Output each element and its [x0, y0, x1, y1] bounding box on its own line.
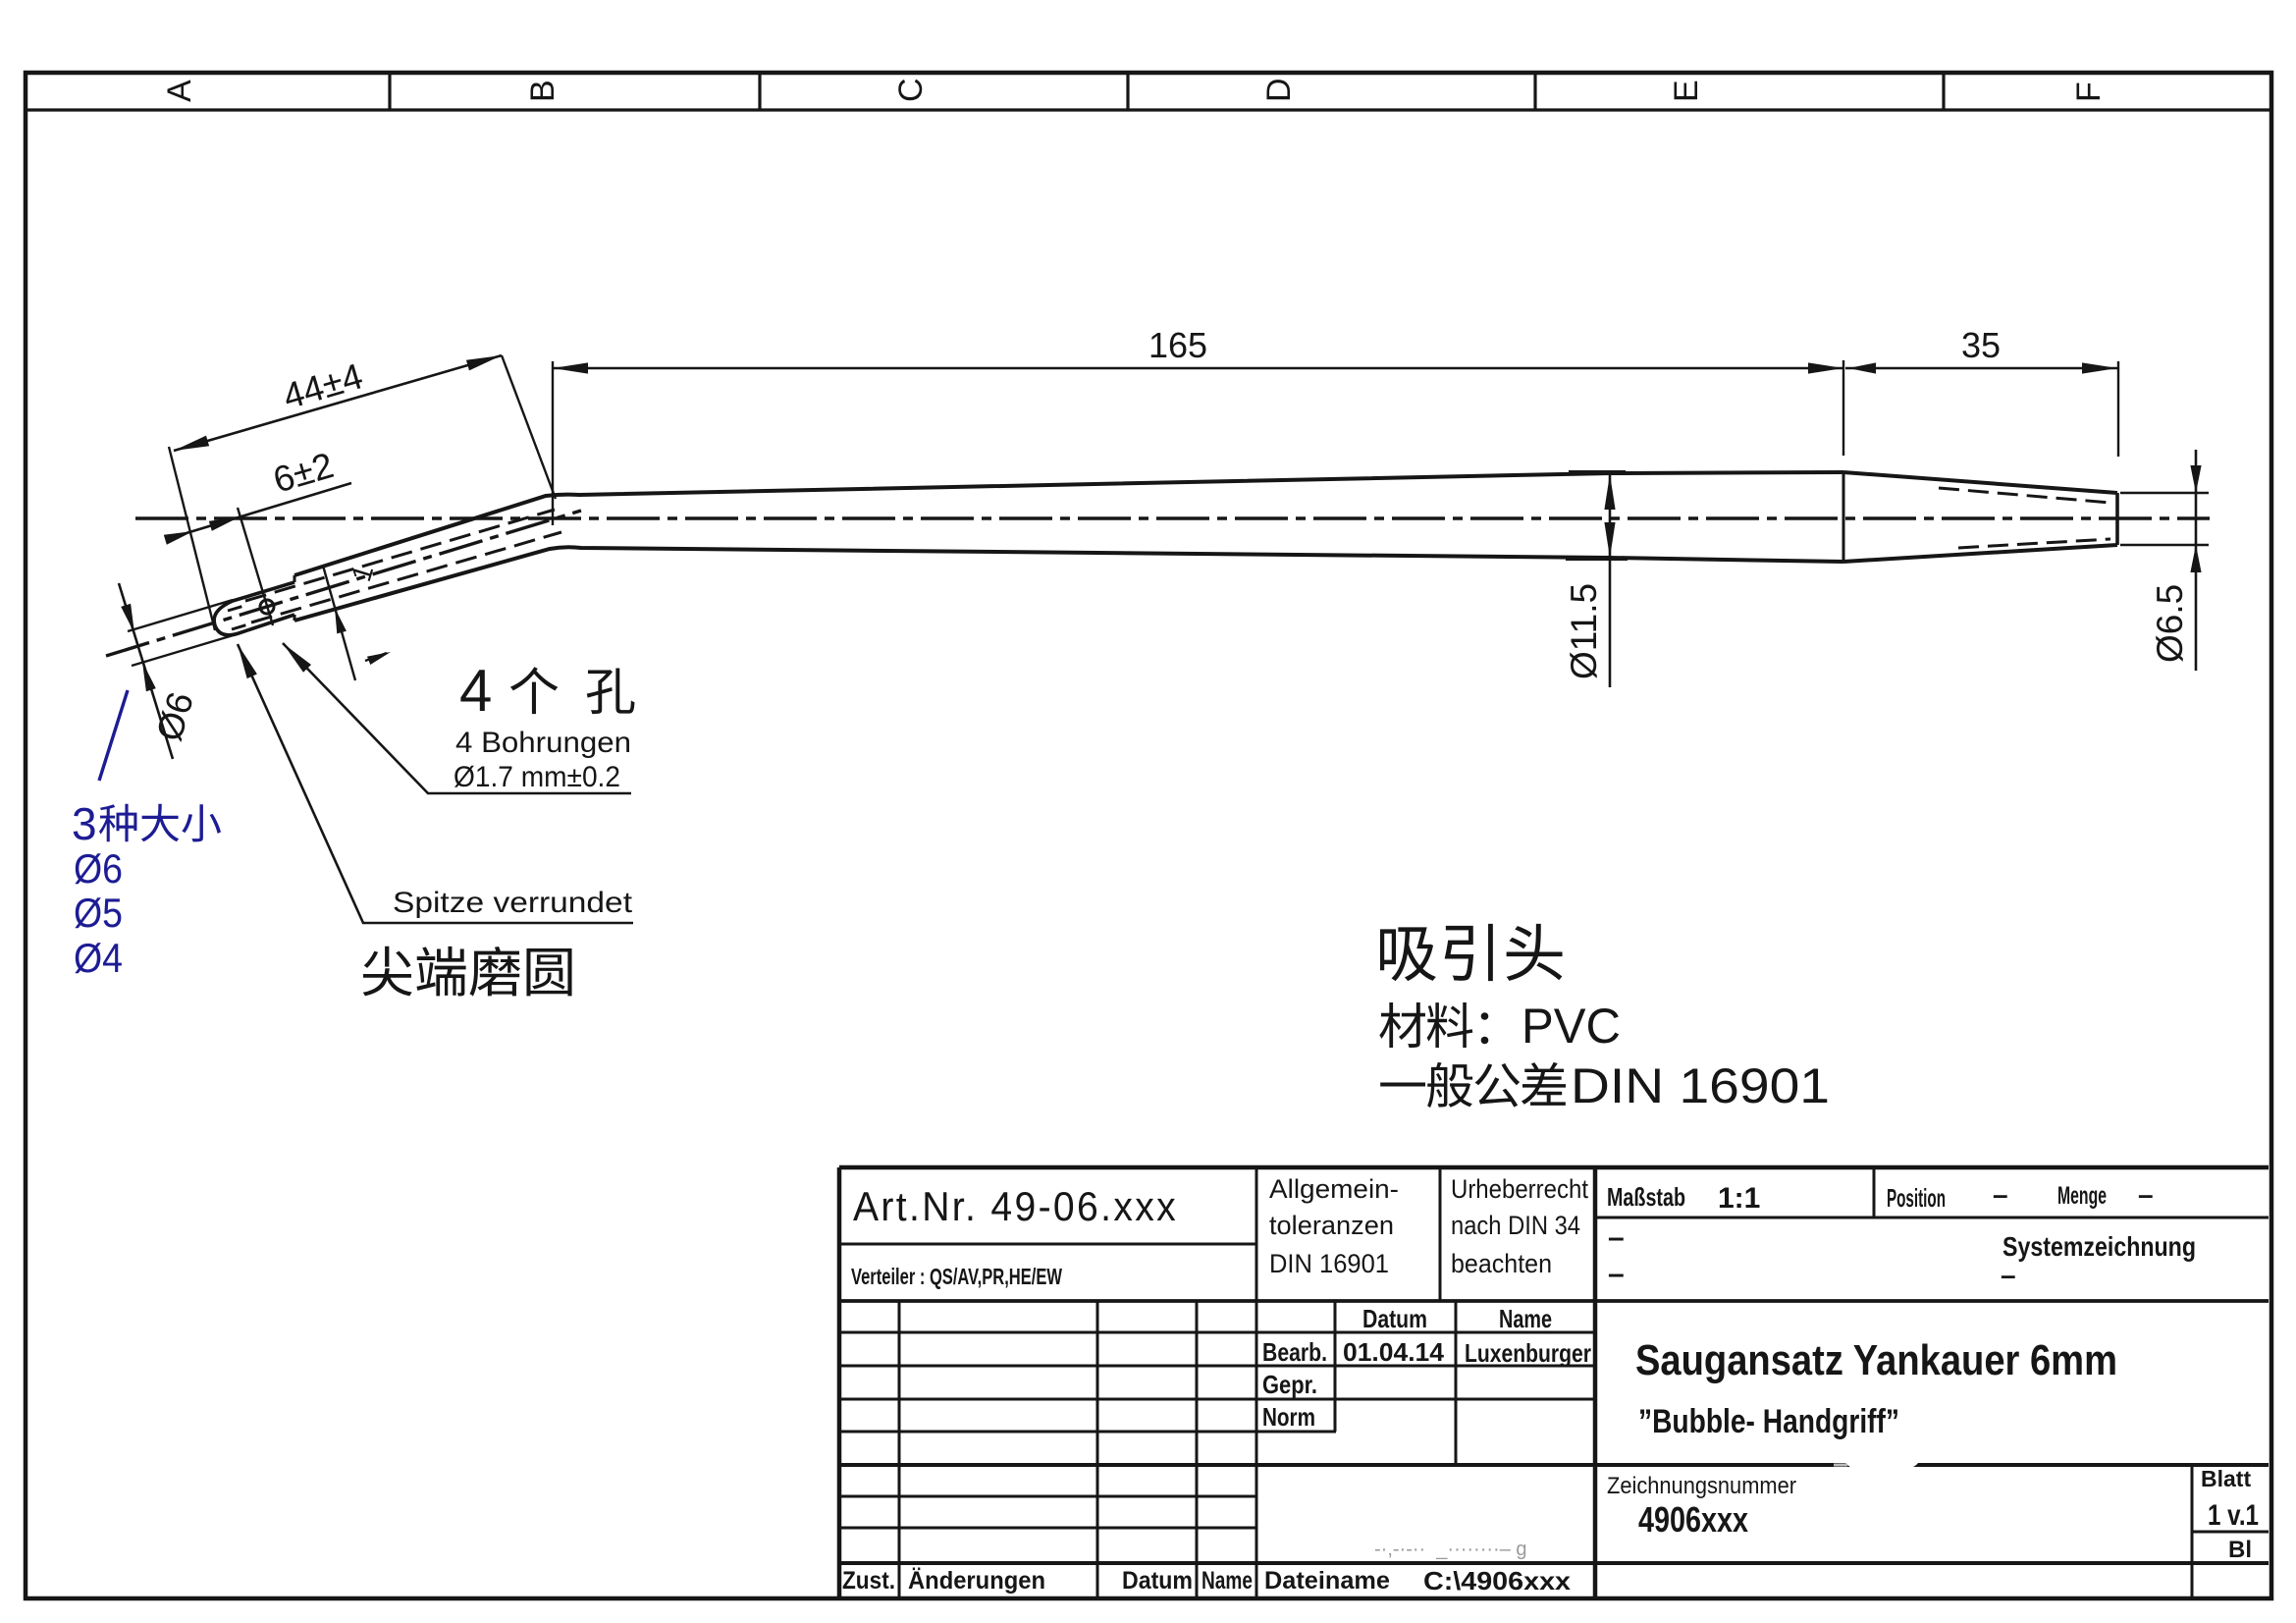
svg-text:Urheberrecht: Urheberrecht — [1451, 1174, 1588, 1204]
svg-text:C:\4906xxx: C:\4906xxx — [1423, 1566, 1572, 1596]
svg-text:Norm: Norm — [1262, 1402, 1315, 1432]
svg-text:Name: Name — [1499, 1304, 1552, 1333]
svg-text:Menge: Menge — [2057, 1182, 2107, 1210]
svg-text:Änderungen: Änderungen — [908, 1567, 1045, 1595]
svg-text:Ø1.7 mm±0.2: Ø1.7 mm±0.2 — [454, 761, 620, 793]
svg-text:F: F — [2070, 81, 2108, 102]
svg-text:1 v.1: 1 v.1 — [2208, 1499, 2259, 1532]
svg-text:35: 35 — [1961, 325, 2001, 365]
svg-text:nach DIN 34: nach DIN 34 — [1451, 1211, 1580, 1240]
svg-text:–: – — [1993, 1179, 2008, 1210]
svg-text:4: 4 — [459, 658, 492, 724]
svg-text:B: B — [524, 80, 561, 102]
svg-text:Maßstab: Maßstab — [1607, 1182, 1685, 1212]
svg-text:3: 3 — [72, 798, 97, 849]
svg-text:Ø6: Ø6 — [74, 845, 123, 892]
svg-text:Ø4: Ø4 — [74, 935, 123, 981]
svg-text:Position: Position — [1887, 1183, 1946, 1213]
svg-text:01.04.14: 01.04.14 — [1343, 1337, 1445, 1367]
svg-text:Systemzeichnung: Systemzeichnung — [2002, 1231, 2196, 1262]
svg-text:Spitze verrundet: Spitze verrundet — [393, 887, 633, 919]
svg-text:4 Bohrungen: 4 Bohrungen — [455, 727, 631, 759]
svg-text:C: C — [892, 78, 930, 102]
svg-text:165: 165 — [1148, 325, 1207, 365]
svg-text:Gepr.: Gepr. — [1262, 1370, 1317, 1399]
svg-text:E: E — [1668, 80, 1705, 102]
svg-text:Ø6.5: Ø6.5 — [2150, 584, 2190, 663]
svg-text:–: – — [1608, 1221, 1625, 1254]
svg-text:-·,-·-·· _········– g: -·,-·-·· _········– g — [1374, 1539, 1527, 1560]
svg-text:–: – — [2001, 1260, 2016, 1290]
svg-text:toleranzen: toleranzen — [1269, 1211, 1394, 1240]
svg-text:D: D — [1260, 78, 1298, 102]
svg-text:Zeichnungsnummer: Zeichnungsnummer — [1607, 1473, 1796, 1499]
svg-text:Saugansatz Yankauer 6mm: Saugansatz Yankauer 6mm — [1635, 1336, 2117, 1384]
svg-text:–: – — [2138, 1179, 2154, 1210]
svg-text:beachten: beachten — [1451, 1249, 1552, 1278]
svg-text:Ø11.5: Ø11.5 — [1564, 583, 1604, 679]
svg-text:Luxenburger: Luxenburger — [1465, 1338, 1591, 1368]
svg-text:DIN 16901: DIN 16901 — [1269, 1249, 1389, 1278]
svg-text:Datum: Datum — [1362, 1304, 1427, 1333]
svg-text:Verteiler : QS/AV,PR,HE/EW: Verteiler : QS/AV,PR,HE/EW — [851, 1264, 1062, 1289]
svg-text:Datum: Datum — [1122, 1567, 1193, 1595]
svg-text:Bl: Bl — [2228, 1537, 2252, 1563]
svg-text:1:1: 1:1 — [1718, 1182, 1760, 1215]
svg-text:Art.Nr. 49-06.xxx: Art.Nr. 49-06.xxx — [853, 1183, 1178, 1229]
svg-text:”Bubble- Handgriff”: ”Bubble- Handgriff” — [1638, 1403, 1899, 1440]
svg-text:Ø5: Ø5 — [74, 890, 123, 936]
svg-text:A: A — [161, 80, 198, 102]
svg-text:–: – — [1608, 1258, 1625, 1290]
svg-text:Bearb.: Bearb. — [1262, 1337, 1327, 1367]
svg-text:DIN 16901: DIN 16901 — [1571, 1058, 1830, 1113]
svg-text:Zust.: Zust. — [842, 1567, 895, 1595]
svg-text:Blatt: Blatt — [2201, 1466, 2251, 1491]
svg-text:Name: Name — [1201, 1567, 1253, 1595]
svg-text:4906xxx: 4906xxx — [1638, 1499, 1748, 1540]
svg-text:Allgemein-: Allgemein- — [1269, 1174, 1399, 1204]
svg-text:Dateiname: Dateiname — [1264, 1567, 1390, 1595]
svg-text:PVC: PVC — [1522, 999, 1621, 1054]
